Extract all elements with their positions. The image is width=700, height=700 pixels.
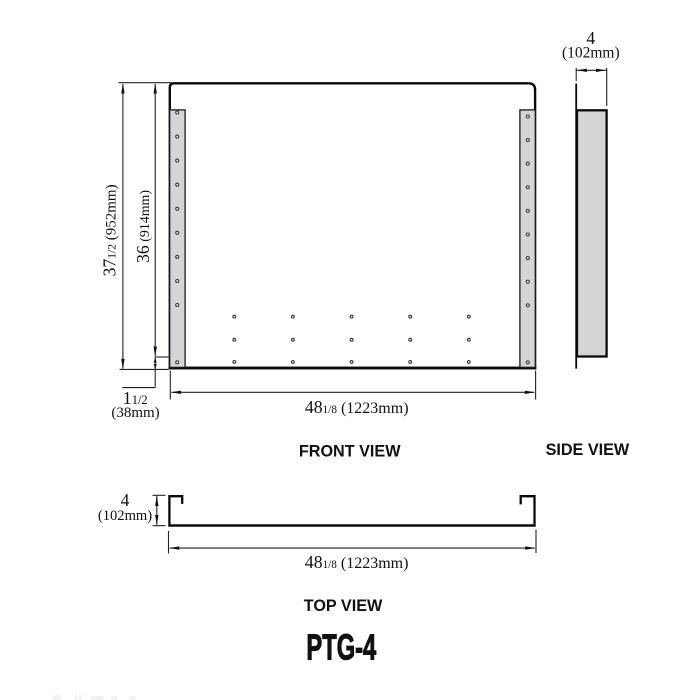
svg-text:FRONT VIEW: FRONT VIEW bbox=[299, 443, 401, 461]
svg-text:(102mm): (102mm) bbox=[98, 508, 152, 524]
svg-text:481/8 (1223mm): 481/8 (1223mm) bbox=[305, 552, 409, 572]
svg-text:(38mm): (38mm) bbox=[111, 405, 159, 421]
svg-text:(102mm): (102mm) bbox=[562, 45, 620, 62]
svg-text:PTG-4: PTG-4 bbox=[306, 626, 376, 668]
svg-text:SIDE VIEW: SIDE VIEW bbox=[546, 441, 630, 459]
svg-text:TOP VIEW: TOP VIEW bbox=[304, 597, 383, 615]
svg-text:481/8 (1223mm): 481/8 (1223mm) bbox=[305, 397, 409, 417]
